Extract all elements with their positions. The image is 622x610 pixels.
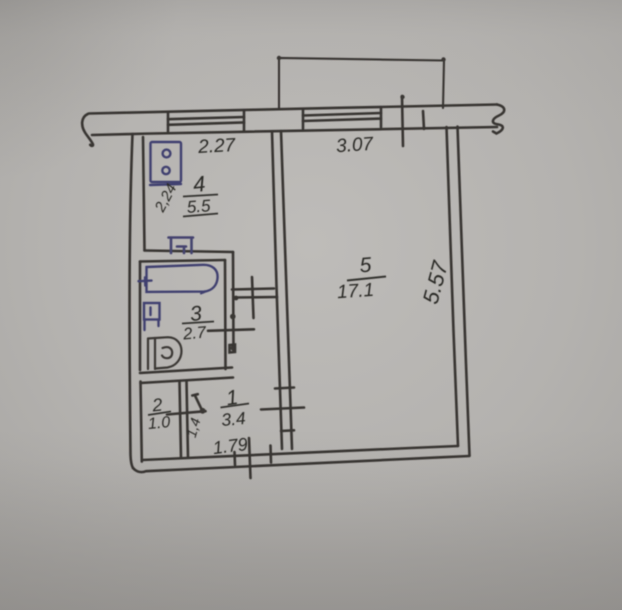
svg-text:17.1: 17.1 xyxy=(336,280,374,304)
svg-text:1.0: 1.0 xyxy=(147,414,171,433)
svg-text:4: 4 xyxy=(192,171,207,197)
svg-text:2.27: 2.27 xyxy=(197,135,237,158)
svg-text:3.07: 3.07 xyxy=(335,134,375,158)
svg-text:1.79: 1.79 xyxy=(212,434,249,458)
svg-text:3.4: 3.4 xyxy=(220,408,246,430)
svg-text:5: 5 xyxy=(359,254,373,278)
svg-text:2.7: 2.7 xyxy=(181,323,207,343)
